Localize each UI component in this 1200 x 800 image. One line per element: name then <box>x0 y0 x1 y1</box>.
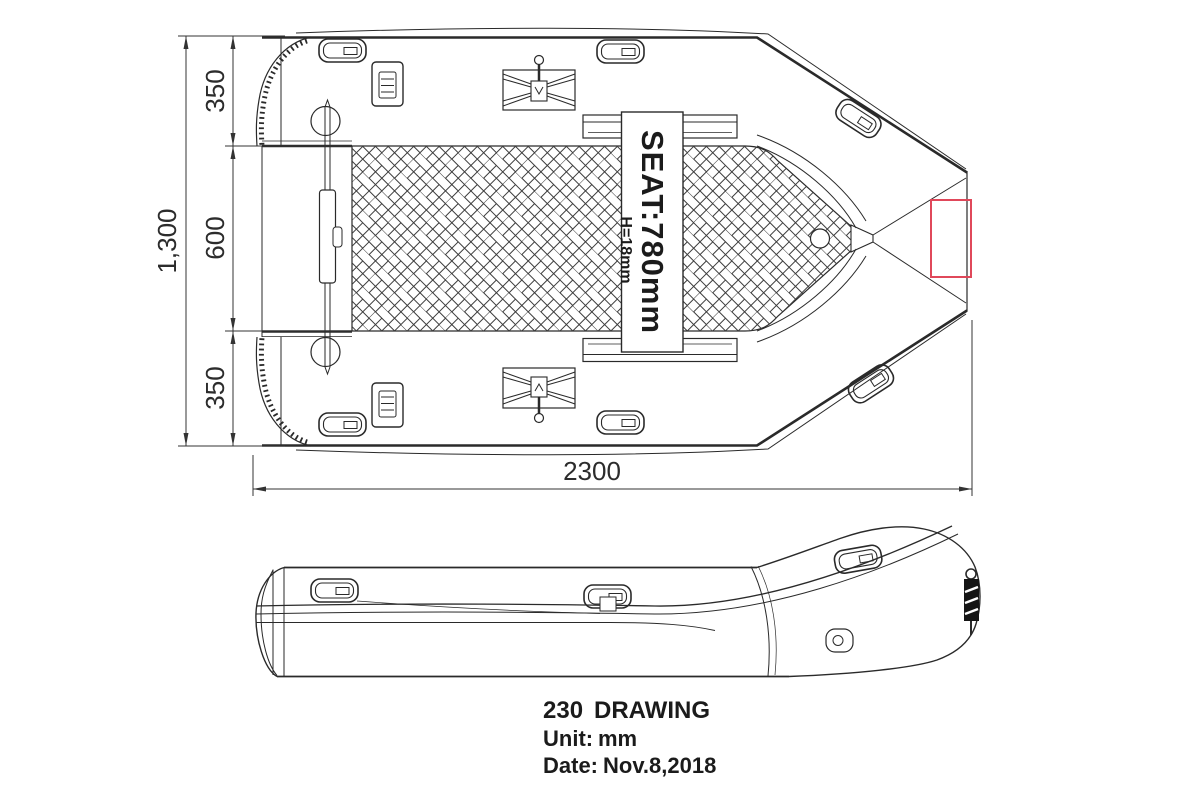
bow-plate-highlight <box>931 200 971 277</box>
date-label: Date: <box>543 753 598 778</box>
handle-tab <box>600 597 616 611</box>
dim-overall-length: 2300 <box>563 456 621 486</box>
seat: SEAT:780mm H=18mm <box>617 112 683 352</box>
carry-handle-mid-top <box>597 40 644 63</box>
seat-height-label: H=18mm <box>617 216 634 283</box>
date-value: Nov.8,2018 <box>603 753 716 778</box>
carry-handle-side-stern <box>311 579 358 602</box>
bow-rope <box>964 569 979 635</box>
dim-cockpit-width: 600 <box>200 216 230 259</box>
drawing-sheet: SEAT:780mm H=18mm 1,300 350 600 350 2300 <box>0 0 1200 800</box>
stern-cone-top <box>256 37 311 146</box>
drawing-title: DRAWING <box>594 697 710 724</box>
air-valve-bottom <box>372 383 403 427</box>
drain-plug <box>811 229 830 248</box>
transom-cleat <box>333 227 342 247</box>
side-view <box>256 526 980 677</box>
top-view: SEAT:780mm H=18mm <box>256 28 971 455</box>
floor-tip-wedge <box>851 225 873 252</box>
d-ring <box>826 629 853 652</box>
oarlock-bottom <box>503 368 575 423</box>
dim-overall-beam: 1,300 <box>152 208 182 273</box>
dim-stern-tube: 350 <box>200 69 230 112</box>
carry-handle-stern-bottom <box>319 413 366 436</box>
unit-label: Unit: <box>543 726 593 751</box>
carry-handle-stern-top <box>319 39 366 62</box>
dim-bow-tube: 350 <box>200 366 230 409</box>
air-valve-top <box>372 62 403 106</box>
stern-cone-bottom <box>256 337 311 446</box>
bow-cone-joint <box>751 566 776 676</box>
unit-value: mm <box>598 726 637 751</box>
air-deck-floor <box>352 146 873 331</box>
rub-strake <box>256 526 958 631</box>
boat-technical-drawing: SEAT:780mm H=18mm 1,300 350 600 350 2300 <box>0 0 1200 800</box>
model-number: 230 <box>543 697 583 724</box>
seat-label: SEAT:780mm <box>635 130 670 334</box>
title-block: 230 DRAWING Unit: mm Date: Nov.8,2018 <box>543 697 716 778</box>
carry-handle-mid-bottom <box>597 411 644 434</box>
oarlock-top <box>503 56 575 111</box>
